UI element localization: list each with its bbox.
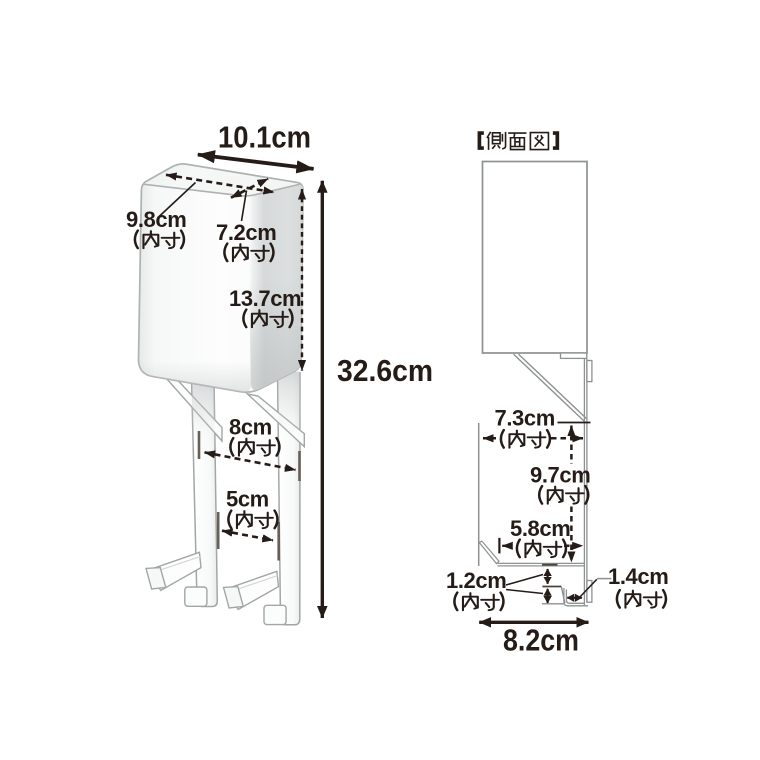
svg-text:1.4cm: 1.4cm xyxy=(608,564,668,589)
svg-text:10.1cm: 10.1cm xyxy=(218,121,311,155)
svg-text:32.6cm: 32.6cm xyxy=(337,353,433,388)
svg-text:5cm: 5cm xyxy=(226,487,269,512)
svg-text:13.7cm: 13.7cm xyxy=(229,286,301,311)
svg-text:1.2cm: 1.2cm xyxy=(446,568,506,593)
svg-text:9.7cm: 9.7cm xyxy=(530,463,590,488)
svg-text:7.2cm: 7.2cm xyxy=(216,220,276,245)
svg-text:8cm: 8cm xyxy=(229,415,272,440)
svg-text:9.8cm: 9.8cm xyxy=(126,207,186,232)
svg-text:8.2cm: 8.2cm xyxy=(503,623,579,658)
svg-text:5.8cm: 5.8cm xyxy=(510,516,570,541)
svg-text:7.3cm: 7.3cm xyxy=(495,406,555,431)
